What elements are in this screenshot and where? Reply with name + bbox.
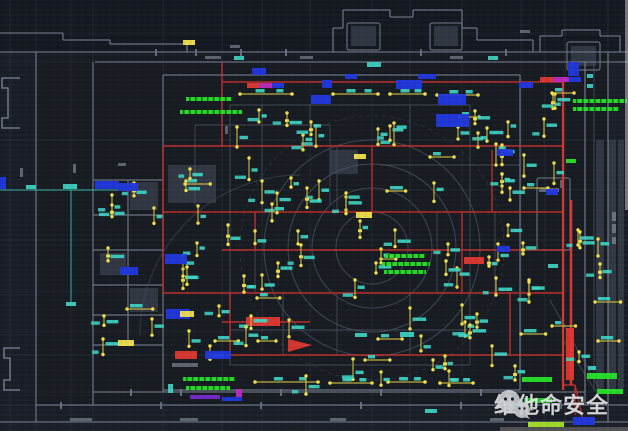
cad-drawing-canvas[interactable]: 维他命安全: [0, 0, 628, 431]
cad-drawing-svg: [0, 0, 628, 431]
